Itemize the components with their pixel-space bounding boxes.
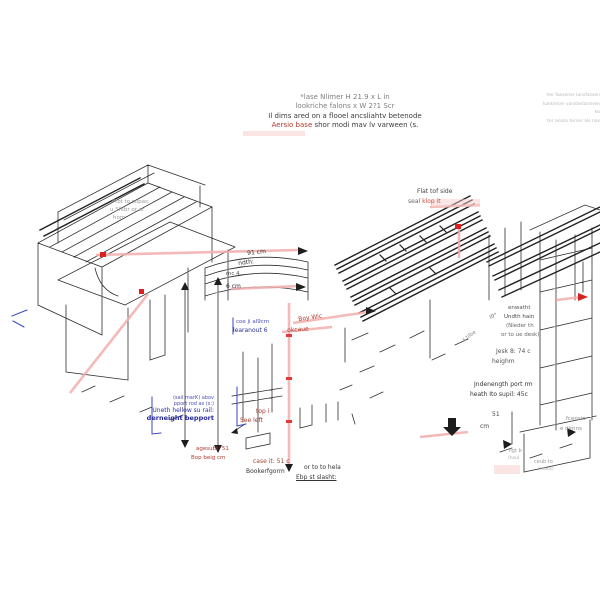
header-line-4-red: Aersio base [272, 121, 313, 129]
header-line-1: *lase Nlimer H 21.9 x L in [140, 93, 550, 102]
header-line-2: lookriche falons x W 2?1 Scr [140, 102, 550, 111]
header-note: *lase Nlimer H 21.9 x L in lookriche fal… [140, 93, 550, 131]
corner-note-line-1: her fassener lansfassen [538, 92, 600, 101]
see-left-label: See left [240, 418, 263, 425]
desk-height-label-line-1: Jesk 8: 74 c [496, 349, 531, 356]
agesubt-label-line-1: agesubt: 51 [196, 446, 229, 452]
support-note-line-1: Prot to supas: [112, 199, 150, 205]
underdesk-note-line-1: Jndenength port rm [474, 382, 533, 389]
underdesk-note-line-2: heath Ito supil: 45c [470, 392, 528, 399]
case-51-label: case it: 51 c [253, 459, 290, 466]
support-note-line-3: hom [113, 215, 125, 221]
right-note-line-3: (Nieder th [506, 323, 534, 329]
corner-note-line-3: ter anssa terser als nas [538, 118, 600, 127]
support-note-line-2: u Sfkbr or ar [110, 207, 144, 213]
bookerform-label: Bookerfgorm [246, 469, 285, 476]
censio-label-line-1: fcensio [566, 416, 586, 422]
pink-dimension-arrows [70, 131, 582, 474]
flat-side-label-line-1: Flat tof side [417, 189, 452, 196]
ligt-label-line-1: ligt b [509, 449, 522, 455]
clearance-note-line-2: learanout 6 [233, 328, 268, 335]
flat-side-gray: seal [408, 198, 422, 205]
mc4-label: mc 4 [226, 271, 240, 277]
flat-side-red: klop it [422, 198, 441, 205]
depth-6cm-label: 6 cm [226, 284, 241, 291]
clearance-note-line-1: coe ji al9cm [236, 319, 269, 325]
diagram-canvas: *lase Nlimer H 21.9 x L in lookriche fal… [0, 0, 600, 600]
ceub-label-line-2: (mack) [538, 468, 554, 473]
ceub-label-line-1: ceub to [534, 460, 553, 466]
right-note-line-2: Undth hain [504, 314, 534, 320]
dim-51-label: 51 [492, 412, 500, 419]
flat-side-label-line-2: seal klop it [408, 199, 441, 206]
header-line-3: Il dims ared on a flooel ancsliahtv bete… [140, 112, 550, 121]
right-note-line-1: enwatht [508, 305, 531, 311]
header-line-4: Aersio base shor modi mav lv varween (s. [140, 121, 550, 130]
rail-support-note: (sail marK) abov pport rod as (s:) Uneth… [147, 395, 214, 422]
header-line-4-rest: shor modi mav lv varween (s. [312, 121, 418, 129]
right-note-line-4: or to ue desk) [501, 332, 539, 338]
black-arrowheads [181, 247, 576, 472]
technical-line-art [0, 0, 600, 600]
corner-note: her fassener lansfassen kanterser vanste… [538, 92, 600, 126]
censio-label-line-2: e dimns [560, 426, 582, 432]
desk-height-label-line-2: heighm [492, 359, 515, 366]
ligt-label-line-2: (hsu) [508, 457, 520, 462]
top-red-label: top i [256, 409, 269, 416]
corner-note-line-2: kanterser vansteilarreren ko [538, 101, 600, 118]
rail-note-line-4: derneight bepport [147, 414, 214, 422]
rail-note-line-3: Uneth hellow su rail: [147, 407, 214, 414]
ebp-slasht-label: Ebp st slasht: [296, 475, 336, 482]
dim-cm-label: cm [480, 424, 489, 431]
agesubt-label-line-2: Bop beig cm [191, 455, 225, 461]
or-to-hela-label: or to to hela [304, 465, 341, 472]
